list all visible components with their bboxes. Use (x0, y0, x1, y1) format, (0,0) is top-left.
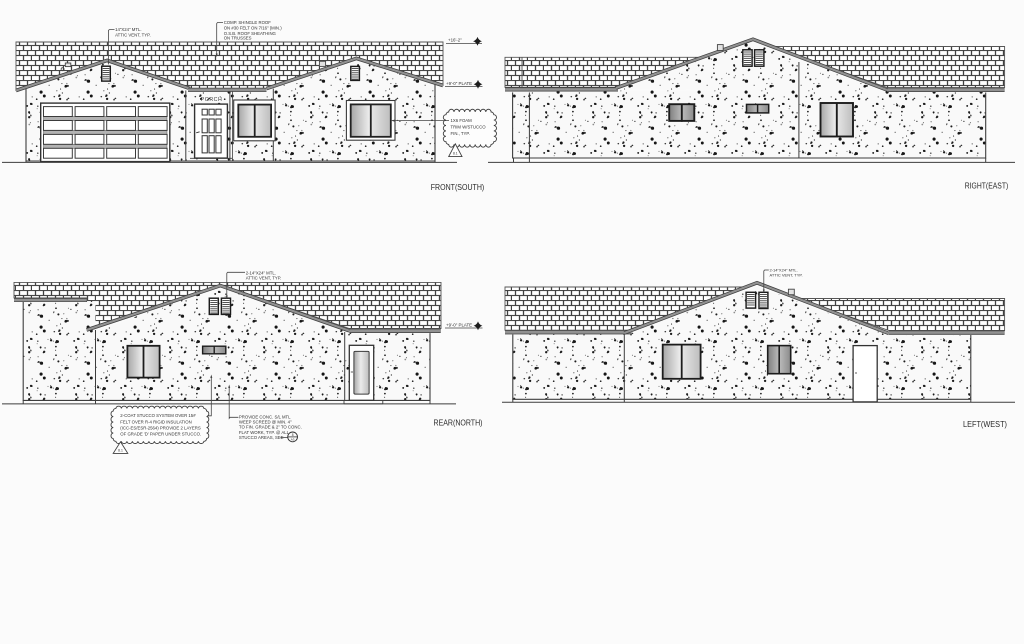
svg-text:FIN., TYP.: FIN., TYP. (451, 131, 470, 136)
svg-text:FELT OVER R-4 RIGID INSULATION: FELT OVER R-4 RIGID INSULATION (120, 419, 191, 424)
svg-text:2-COAT STUCCO SYSTEM OVER 15#: 2-COAT STUCCO SYSTEM OVER 15# (120, 413, 196, 418)
svg-text:ON TRUSSES: ON TRUSSES (224, 35, 252, 40)
svg-text:+9'-0" PLATE: +9'-0" PLATE (446, 81, 472, 86)
svg-text:8.1: 8.1 (453, 152, 458, 156)
svg-text:ATTIC VENT, TYP.: ATTIC VENT, TYP. (246, 276, 282, 281)
svg-text:A3: A3 (291, 438, 295, 442)
svg-text:STUCCO AREAS, SEE: STUCCO AREAS, SEE (239, 435, 284, 440)
svg-text:COMP. SHINGLE ROOF: COMP. SHINGLE ROOF (224, 20, 272, 25)
svg-text:LEFT(WEST): LEFT(WEST) (963, 419, 1007, 429)
svg-text:ON #30 FELT ON 7/16" (MIN.): ON #30 FELT ON 7/16" (MIN.) (224, 26, 283, 31)
svg-text:TRIM W/STUCCO: TRIM W/STUCCO (451, 124, 487, 129)
svg-text:OF GRADE 'D' PAPER UNDER STUCC: OF GRADE 'D' PAPER UNDER STUCCO. (120, 432, 201, 437)
svg-text:RIGHT(EAST): RIGHT(EAST) (965, 181, 1009, 191)
svg-text:14"X24" MTL.: 14"X24" MTL. (115, 27, 141, 32)
svg-text:PORCH: PORCH (201, 97, 223, 103)
svg-text:2-14"X24" MTL.: 2-14"X24" MTL. (246, 270, 276, 275)
svg-text:1X6 FOAM: 1X6 FOAM (451, 118, 473, 123)
svg-text:+16'-2": +16'-2" (448, 38, 462, 43)
svg-text:ATTIC VENT, TYP.: ATTIC VENT, TYP. (770, 272, 803, 277)
svg-text:+9'-0" PLATE: +9'-0" PLATE (446, 322, 472, 327)
svg-text:(ICC-ES/ESR-2564) PROVIDE 2 LA: (ICC-ES/ESR-2564) PROVIDE 2 LAYERS (120, 426, 201, 431)
svg-text:8: 8 (292, 433, 294, 437)
svg-text:REAR(NORTH): REAR(NORTH) (434, 418, 483, 428)
svg-text:FRONT(SOUTH): FRONT(SOUTH) (431, 182, 485, 192)
svg-text:8.1: 8.1 (118, 448, 123, 452)
svg-text:ATTIC VENT, TYP.: ATTIC VENT, TYP. (115, 32, 151, 37)
